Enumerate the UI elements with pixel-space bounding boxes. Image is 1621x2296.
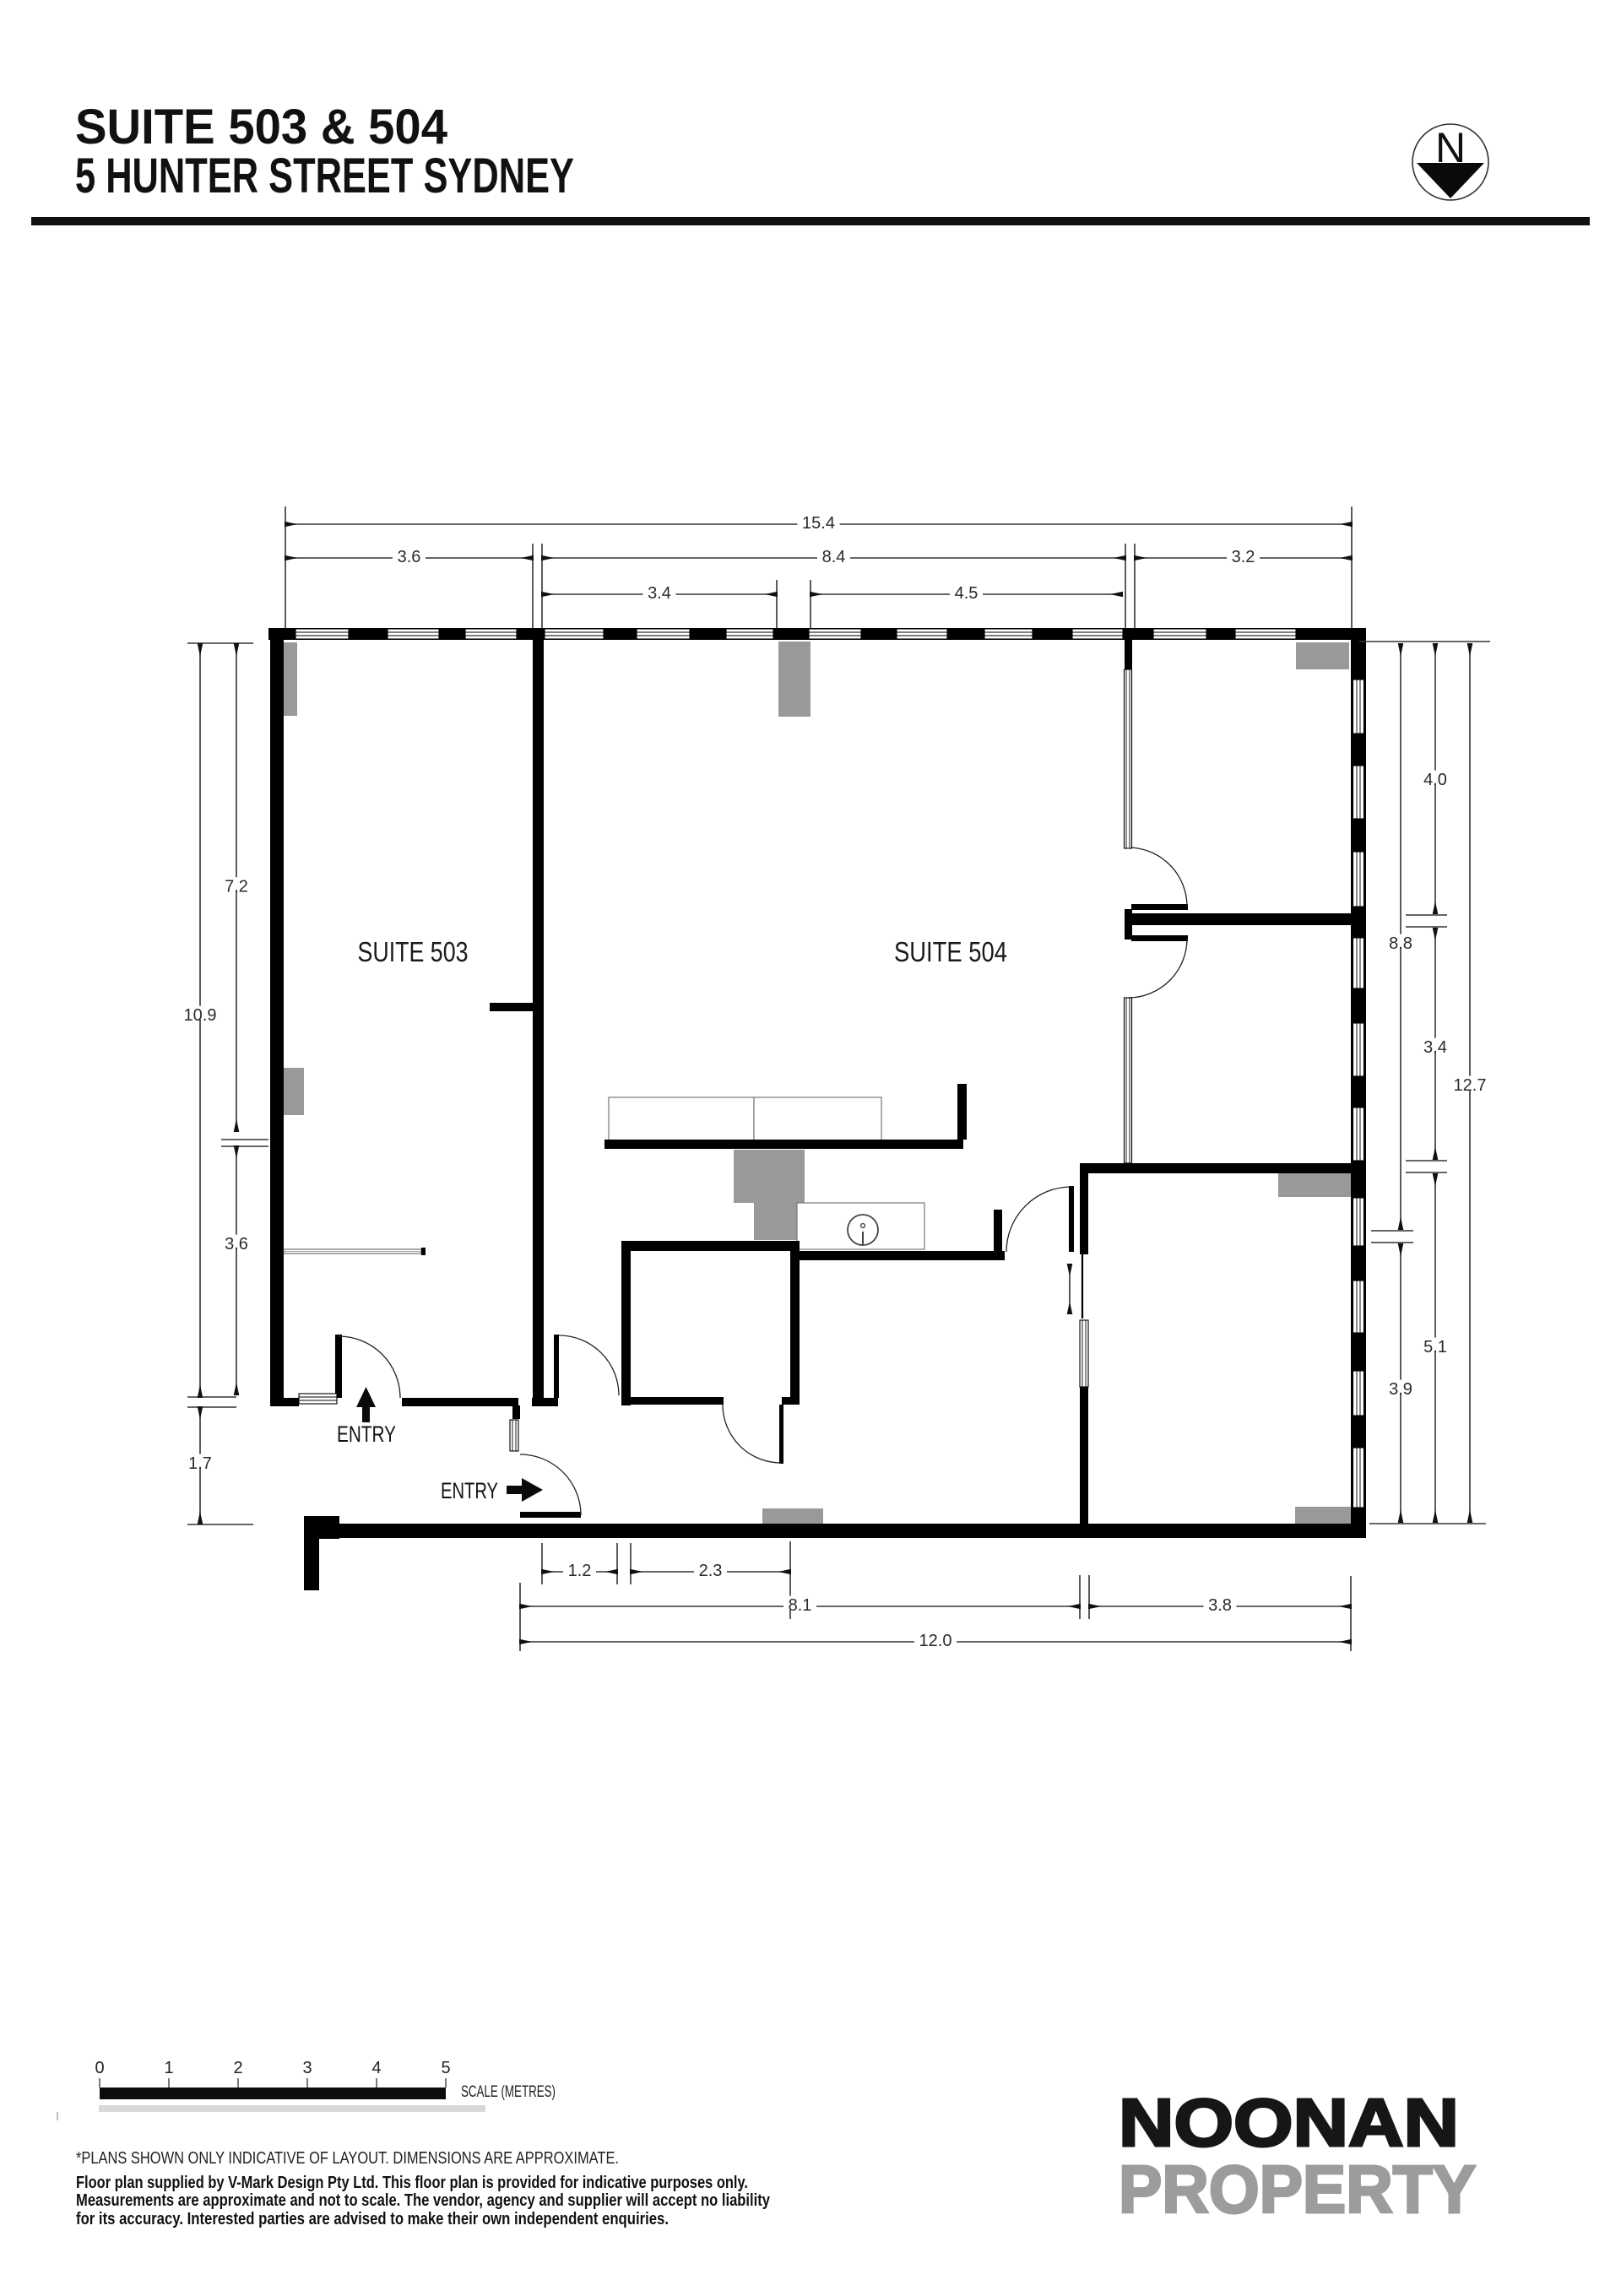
svg-text:8.8: 8.8	[1389, 934, 1412, 953]
svg-text:Floor plan supplied by V-Mark: Floor plan supplied by V-Mark Design Pty…	[76, 2174, 748, 2192]
svg-text:ENTRY: ENTRY	[441, 1478, 498, 1503]
svg-text:Measurements are approximate a: Measurements are approximate and not to …	[76, 2191, 771, 2210]
svg-text:5.1: 5.1	[1423, 1338, 1447, 1356]
svg-text:8.4: 8.4	[822, 548, 846, 566]
svg-text:4.0: 4.0	[1423, 771, 1447, 789]
svg-text:NOONAN: NOONAN	[1119, 2085, 1459, 2160]
svg-text:5 HUNTER STREET SYDNEY: 5 HUNTER STREET SYDNEY	[75, 149, 574, 203]
svg-text:8.1: 8.1	[789, 1596, 812, 1615]
svg-text:3.2: 3.2	[1232, 548, 1255, 566]
svg-text:4: 4	[371, 2059, 381, 2077]
svg-text:3.8: 3.8	[1208, 1596, 1232, 1615]
svg-text:3: 3	[302, 2059, 312, 2077]
svg-text:15.4: 15.4	[802, 514, 835, 533]
svg-text:1.7: 1.7	[188, 1454, 212, 1473]
svg-text:for its accuracy. Interested p: for its accuracy. Interested parties are…	[76, 2210, 669, 2228]
svg-text:12.0: 12.0	[919, 1632, 952, 1650]
svg-text:3.4: 3.4	[648, 584, 671, 603]
svg-text:3.9: 3.9	[1389, 1380, 1412, 1399]
svg-text:SUITE 503 & 504: SUITE 503 & 504	[75, 100, 447, 154]
svg-text:3.4: 3.4	[1423, 1038, 1447, 1057]
svg-text:2: 2	[233, 2059, 242, 2077]
svg-text:4.5: 4.5	[955, 584, 979, 603]
svg-text:7.2: 7.2	[225, 878, 248, 896]
svg-text:1.2: 1.2	[568, 1562, 592, 1580]
svg-text:5: 5	[441, 2059, 450, 2077]
svg-text:0: 0	[95, 2059, 104, 2077]
svg-text:10.9: 10.9	[184, 1006, 217, 1025]
svg-text:SCALE (METRES): SCALE (METRES)	[461, 2083, 556, 2101]
svg-text:12.7: 12.7	[1454, 1076, 1487, 1095]
svg-text:PROPERTY: PROPERTY	[1119, 2152, 1476, 2227]
svg-text:1: 1	[164, 2059, 173, 2077]
svg-text:SUITE 503: SUITE 503	[358, 936, 469, 967]
svg-text:*PLANS SHOWN ONLY INDICATIVE O: *PLANS SHOWN ONLY INDICATIVE OF LAYOUT. …	[76, 2149, 619, 2168]
svg-text:SUITE 504: SUITE 504	[894, 936, 1007, 967]
svg-text:3.6: 3.6	[225, 1235, 248, 1254]
svg-text:ENTRY: ENTRY	[337, 1421, 396, 1447]
svg-text:2.3: 2.3	[699, 1562, 723, 1580]
svg-text:3.6: 3.6	[398, 548, 421, 566]
